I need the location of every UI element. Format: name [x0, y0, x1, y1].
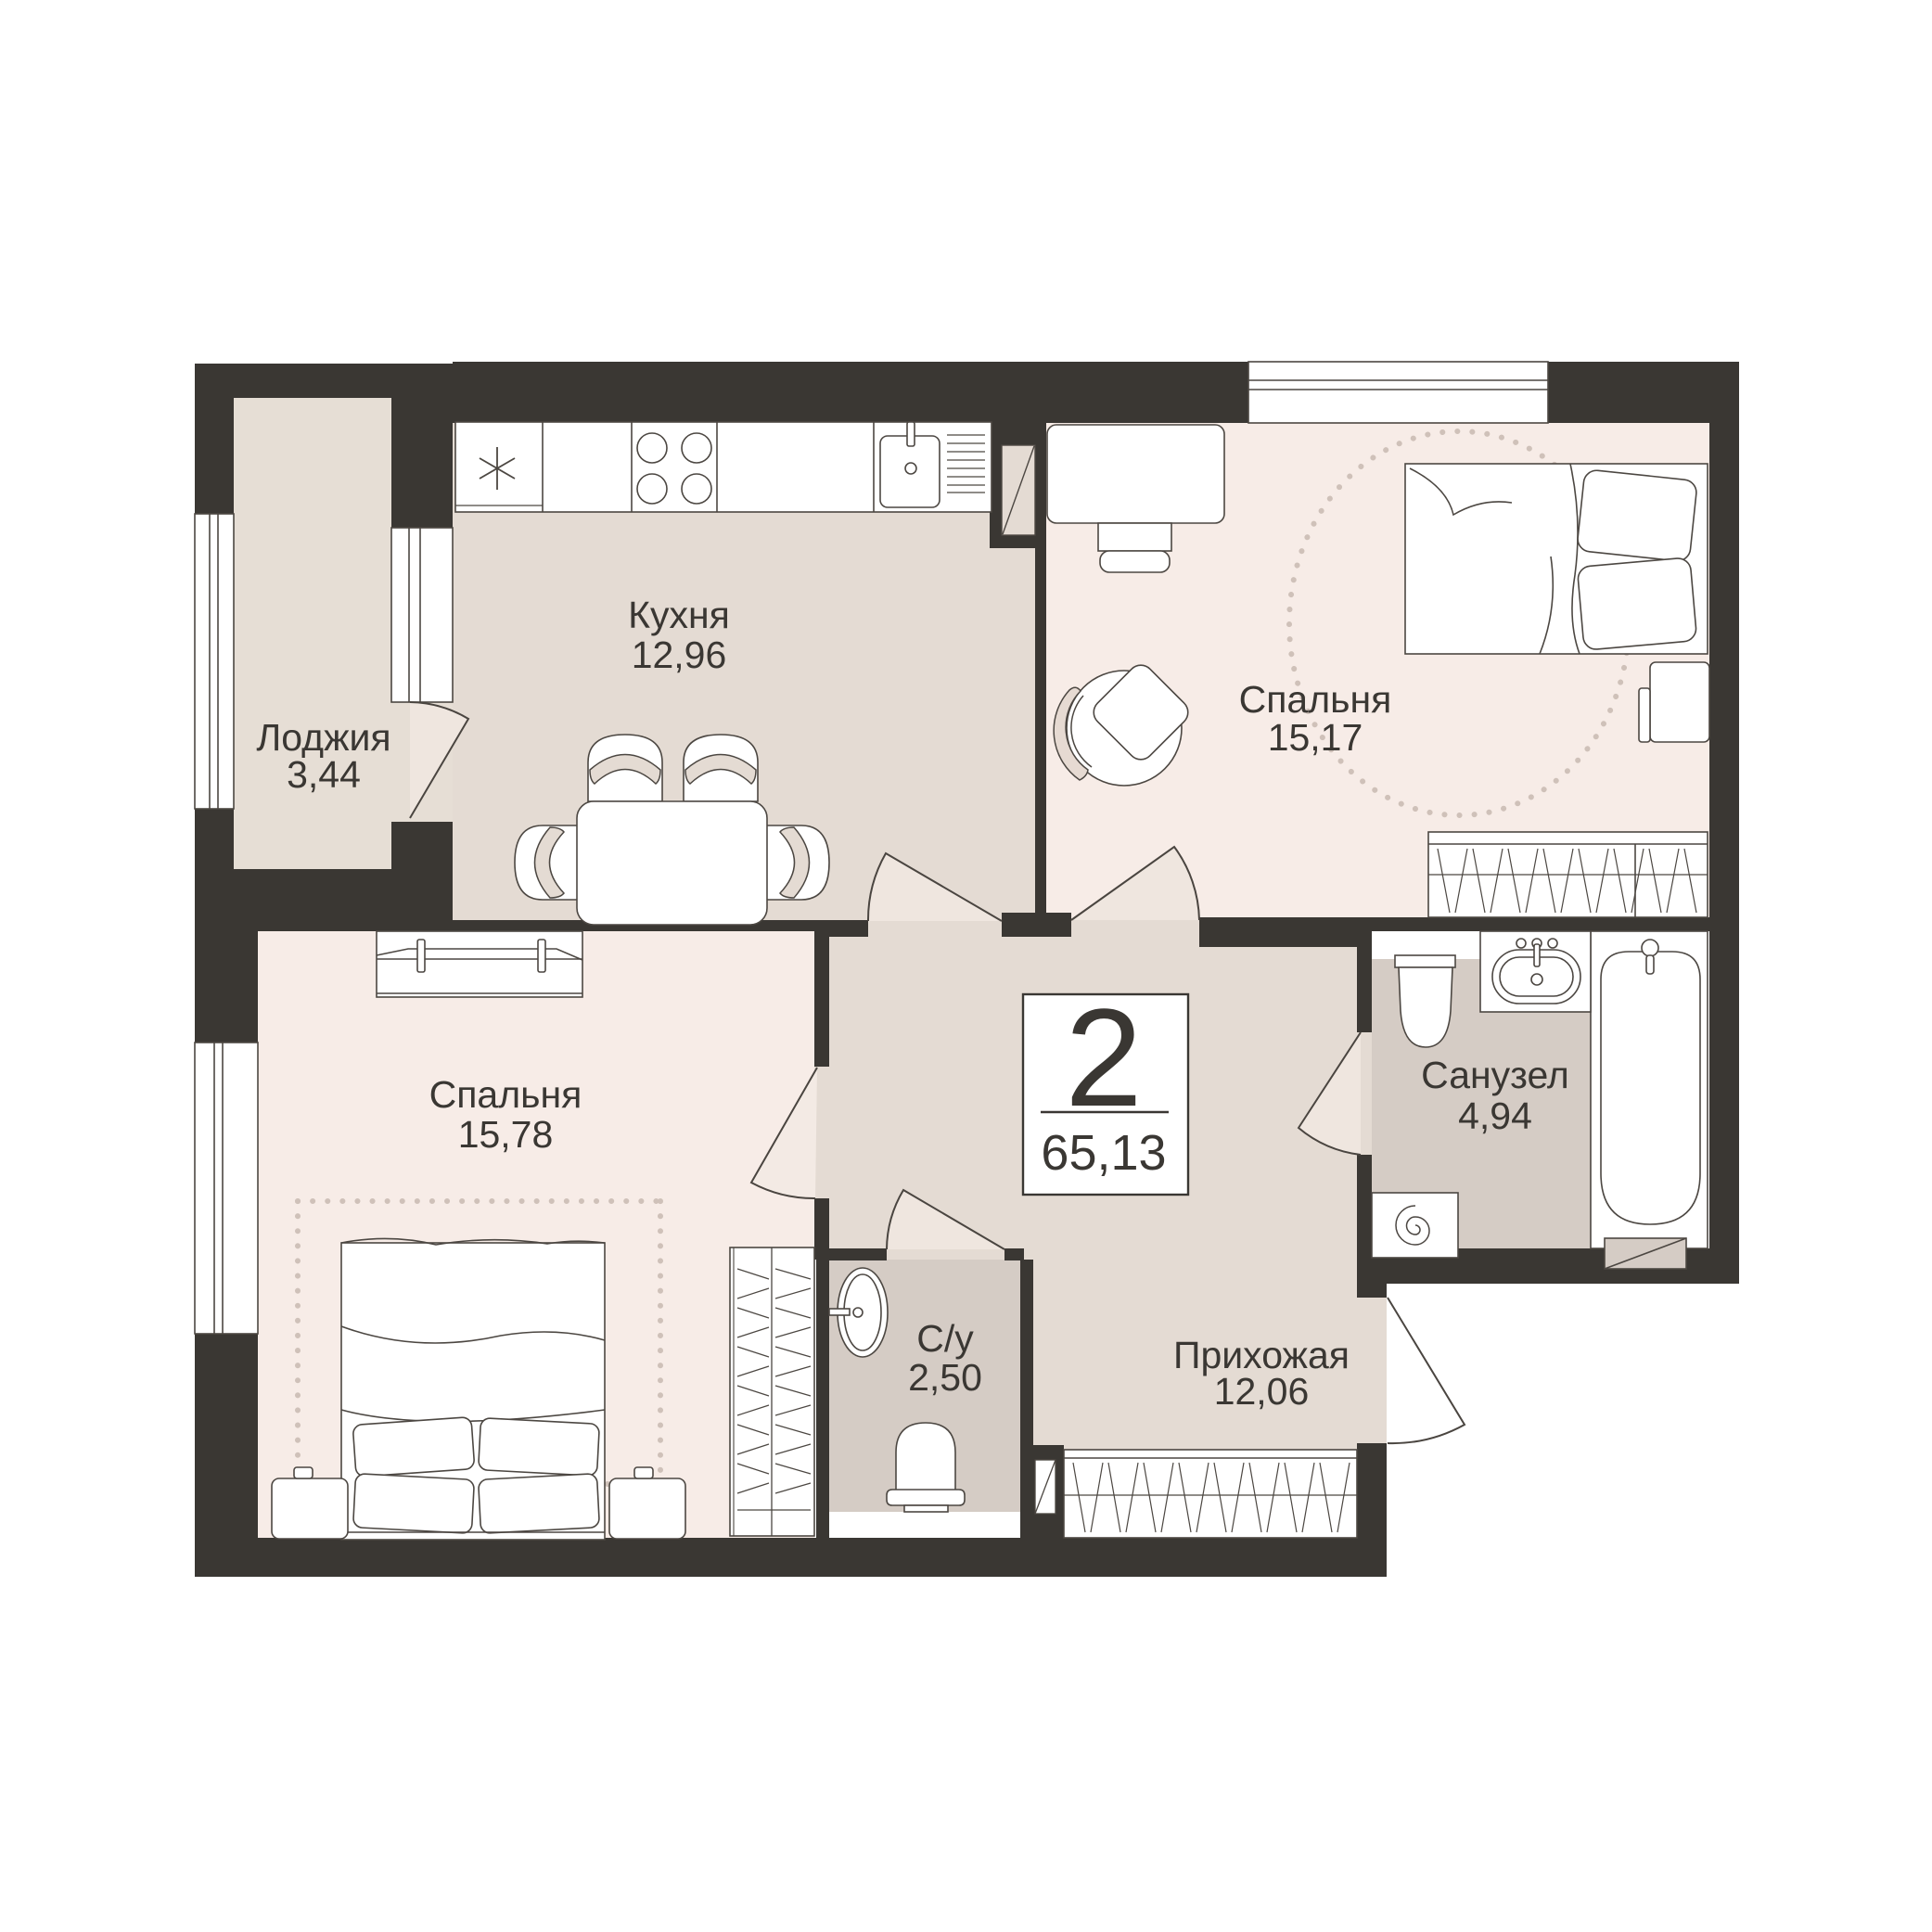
svg-text:Санузел: Санузел: [1421, 1054, 1569, 1096]
svg-text:3,44: 3,44: [287, 753, 361, 796]
svg-text:Спальня: Спальня: [1239, 678, 1392, 721]
svg-text:4,94: 4,94: [1458, 1094, 1532, 1137]
svg-text:Кухня: Кухня: [628, 594, 730, 636]
svg-text:15,78: 15,78: [458, 1113, 554, 1156]
svg-text:Спальня: Спальня: [429, 1073, 582, 1116]
svg-text:2,50: 2,50: [908, 1356, 982, 1399]
svg-text:12,96: 12,96: [632, 633, 727, 676]
svg-text:С/у: С/у: [916, 1317, 974, 1360]
svg-text:12,06: 12,06: [1214, 1370, 1310, 1413]
svg-text:65,13: 65,13: [1041, 1125, 1166, 1181]
svg-text:15,17: 15,17: [1268, 716, 1363, 759]
